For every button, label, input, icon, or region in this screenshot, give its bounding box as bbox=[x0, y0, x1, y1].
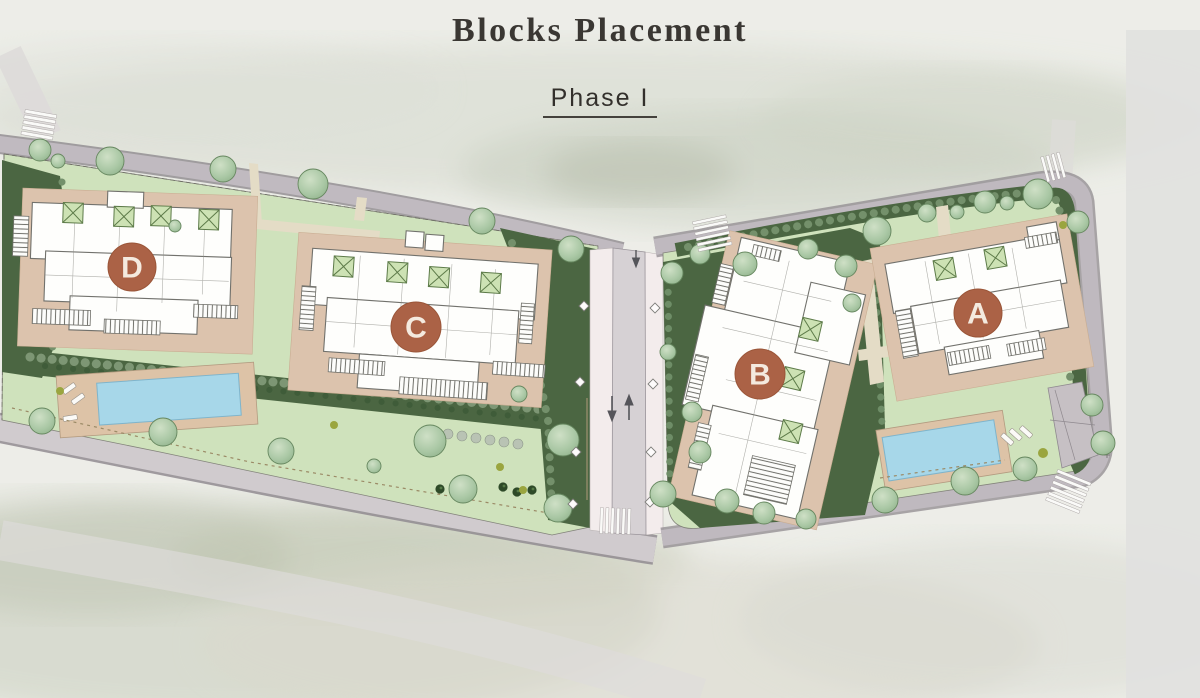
planter-icon bbox=[63, 203, 84, 224]
planter-icon bbox=[480, 272, 501, 293]
planter-icon bbox=[984, 246, 1007, 269]
block-d-badge[interactable]: D bbox=[108, 243, 156, 291]
shrub-accent bbox=[330, 421, 338, 429]
site-plan: D C B A bbox=[0, 0, 1200, 698]
planter-icon bbox=[151, 206, 172, 227]
planter-icon bbox=[428, 267, 449, 288]
stairs-hatch bbox=[299, 286, 316, 331]
shrub-accent bbox=[519, 486, 527, 494]
stairs-hatch bbox=[12, 216, 28, 256]
roof bbox=[107, 191, 144, 208]
block-b-badge[interactable]: B bbox=[735, 349, 785, 399]
planter-icon bbox=[199, 209, 220, 230]
stairs-hatch bbox=[519, 303, 535, 344]
planter-icon bbox=[779, 420, 803, 444]
block-c-label: C bbox=[405, 312, 427, 345]
roadway bbox=[612, 248, 646, 535]
sidewalk-left bbox=[590, 248, 613, 533]
stairs-hatch bbox=[104, 319, 160, 335]
stairs-hatch bbox=[193, 304, 237, 319]
shrub-accent bbox=[56, 387, 64, 395]
block-b-label: B bbox=[749, 359, 771, 392]
stairs-hatch bbox=[32, 309, 90, 326]
planter-icon bbox=[798, 317, 822, 341]
shrub-accent bbox=[1059, 221, 1067, 229]
shrub-accent bbox=[1038, 448, 1048, 458]
planter-icon bbox=[387, 262, 408, 283]
planter-icon bbox=[114, 206, 135, 227]
block-a-badge[interactable]: A bbox=[954, 289, 1002, 337]
roof bbox=[425, 234, 444, 251]
block-d-label: D bbox=[121, 252, 143, 285]
site-plan-page: D C B A Blocks Placement Phase I bbox=[0, 0, 1200, 698]
block-c-badge[interactable]: C bbox=[391, 302, 441, 352]
block-a-label: A bbox=[967, 298, 989, 331]
planter-icon bbox=[933, 257, 956, 280]
roof bbox=[405, 231, 424, 248]
shrub-accent bbox=[496, 463, 504, 471]
planter-icon bbox=[333, 256, 354, 277]
